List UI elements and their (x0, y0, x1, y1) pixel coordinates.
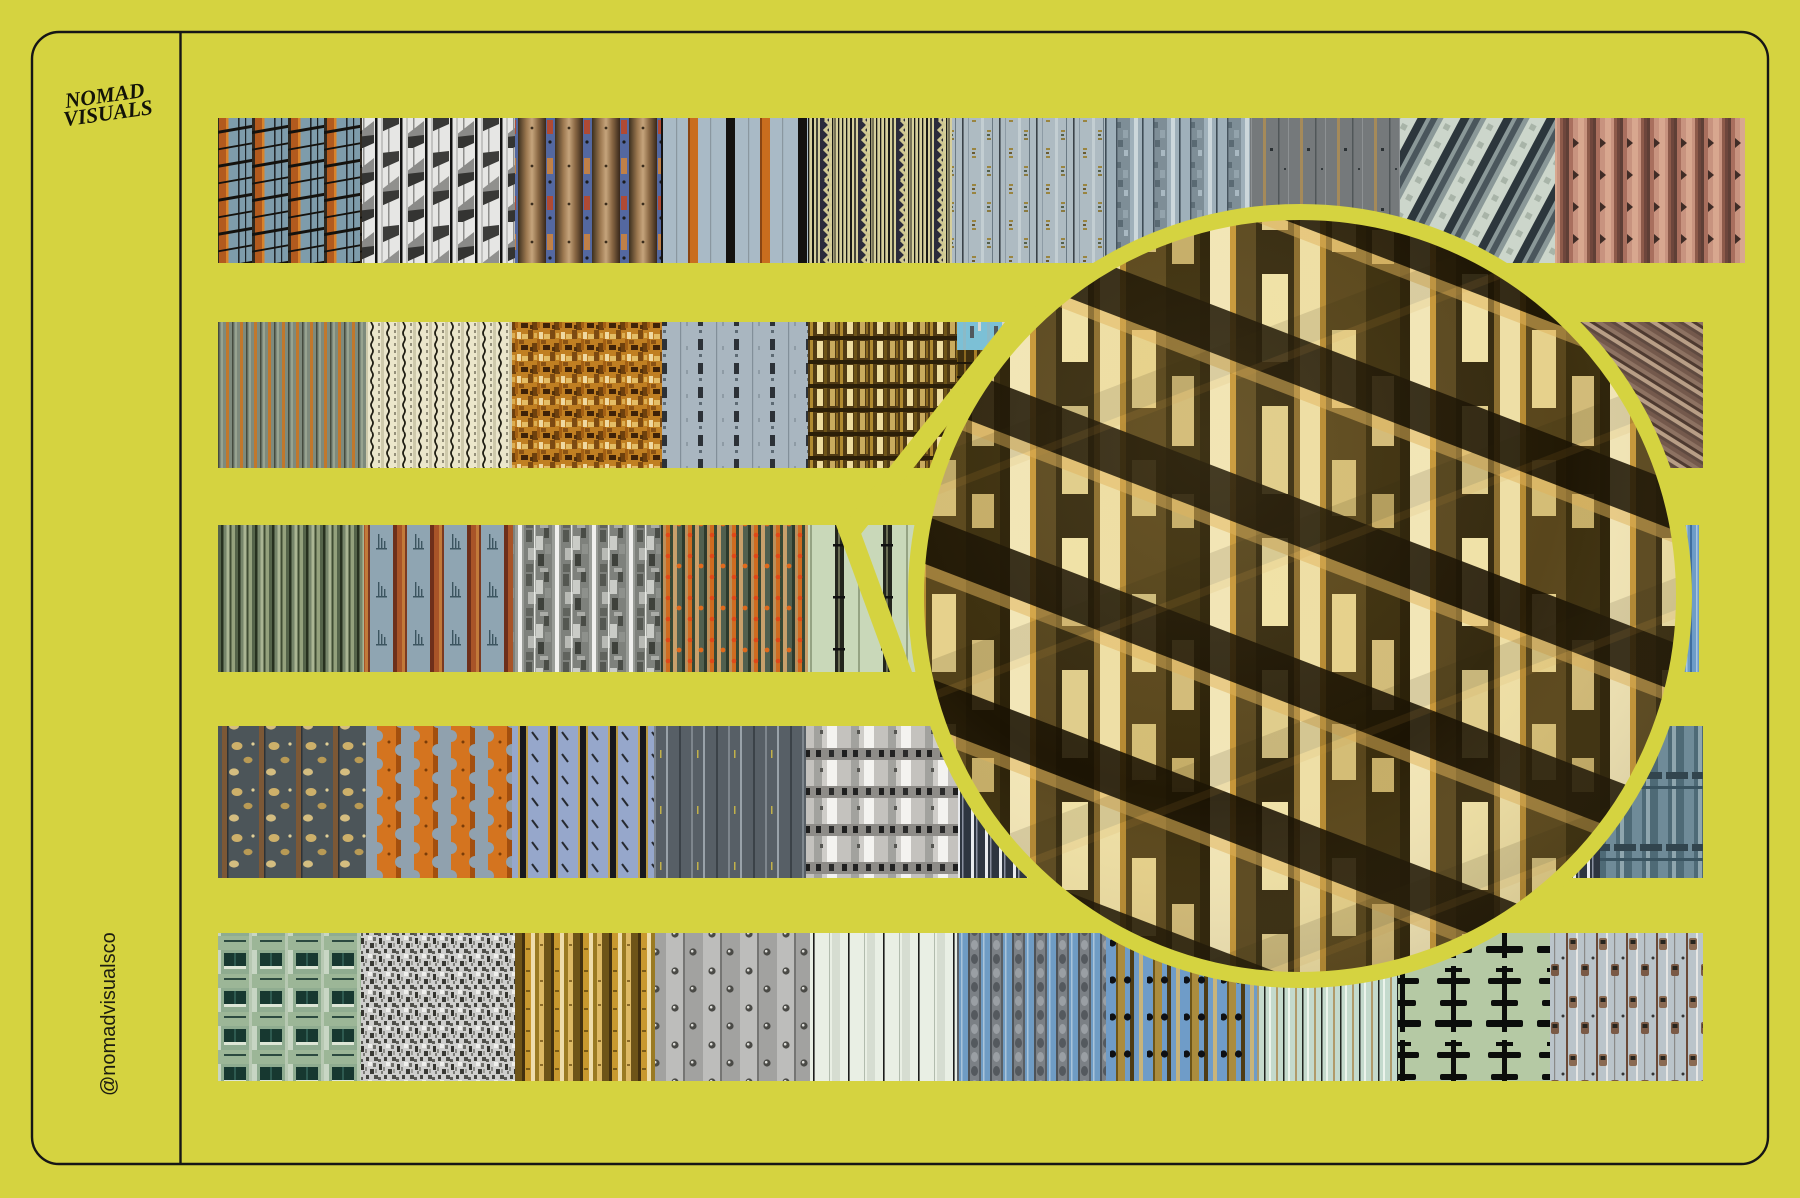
svg-text:@nomadvisualsco: @nomadvisualsco (98, 932, 120, 1096)
